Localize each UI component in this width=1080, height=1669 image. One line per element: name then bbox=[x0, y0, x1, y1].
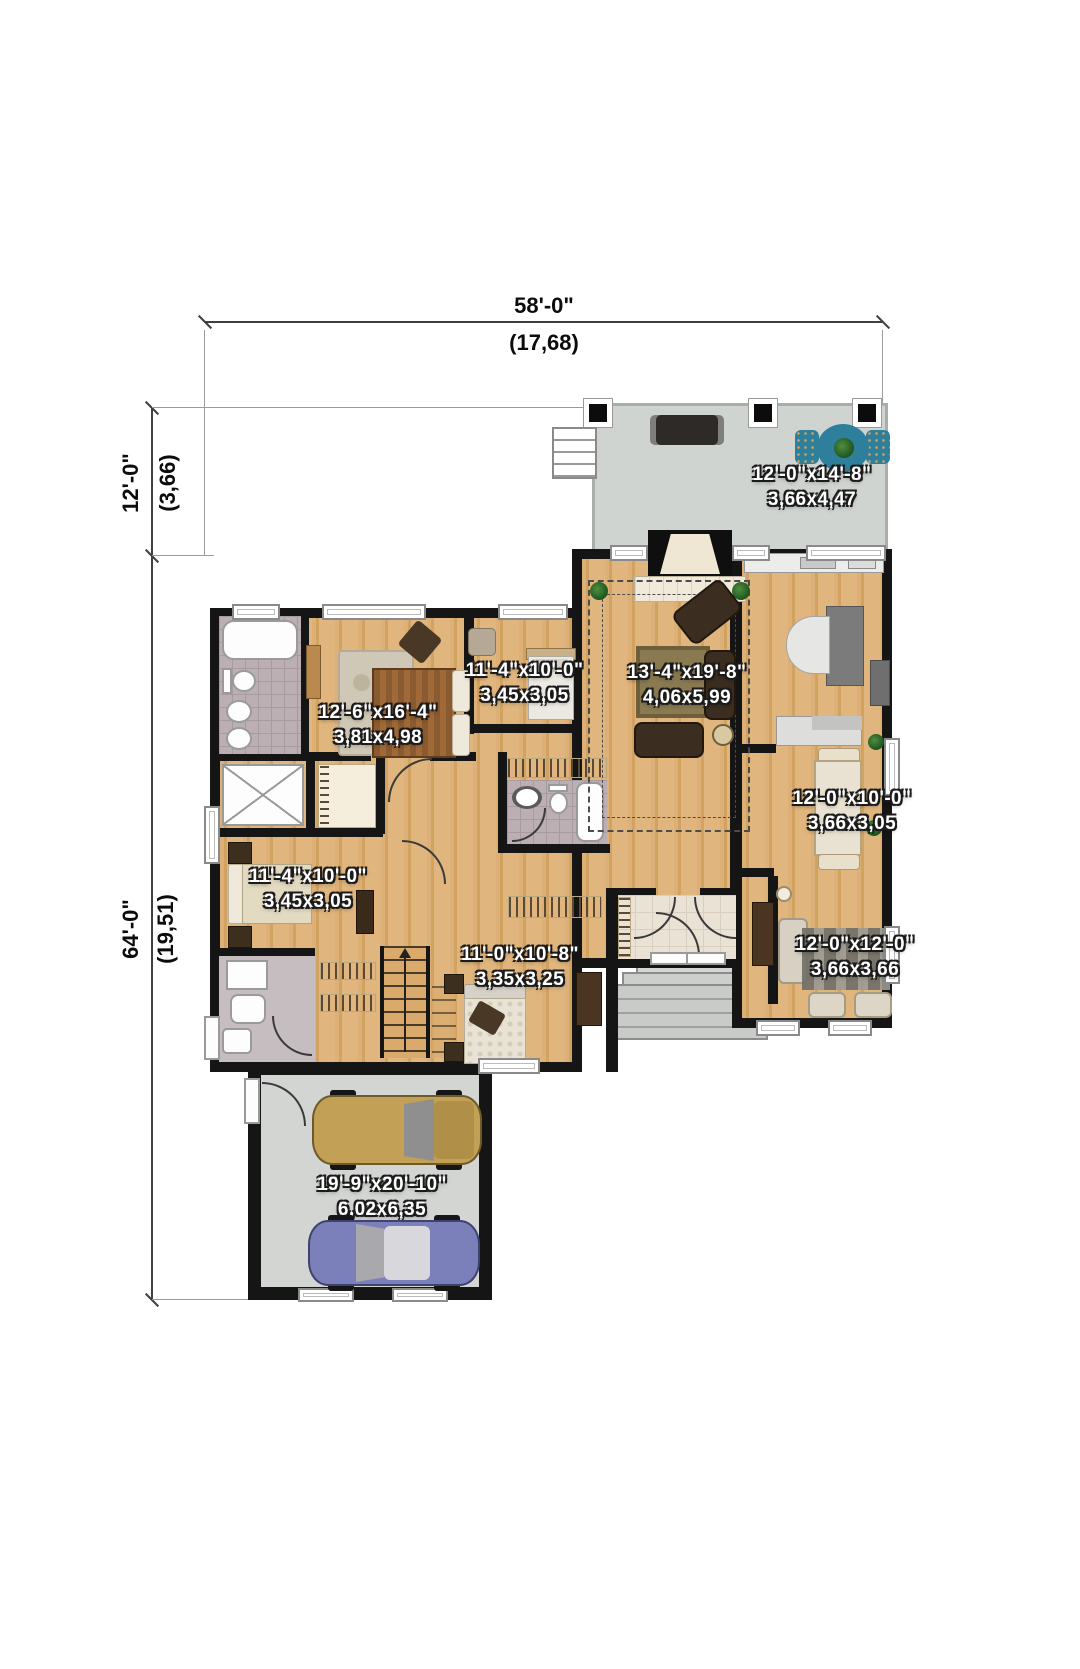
car-gold bbox=[312, 1093, 482, 1167]
bed4-size-m: 3,35x3,25 bbox=[420, 967, 620, 992]
terrace-bench bbox=[656, 415, 718, 445]
terrace-stairs bbox=[552, 427, 597, 479]
window-living-left bbox=[610, 545, 648, 561]
wall-shower-closet bbox=[306, 758, 315, 834]
bedroom3-label: 11'-4"x10'-0" 3,45x3,05 bbox=[208, 864, 408, 914]
wall-bath-left bbox=[498, 752, 507, 848]
living-size-ft: 13'-4"x19'-8" bbox=[587, 660, 787, 685]
wall-bed2-bottom bbox=[464, 724, 576, 733]
family-size-ft: 12'-0"x12'-0" bbox=[755, 932, 955, 957]
window-living-right bbox=[732, 545, 770, 561]
ext-line-terrace-top bbox=[152, 407, 592, 408]
garage-size-ft: 19'-9"x20'-10" bbox=[272, 1172, 492, 1197]
bed3-size-m: 3,45x3,05 bbox=[208, 889, 408, 914]
window-bed4 bbox=[478, 1058, 540, 1074]
living-size-m: 4,06x5,99 bbox=[587, 685, 787, 710]
top-dimension-line bbox=[205, 321, 883, 323]
bed3-nightstand-2 bbox=[228, 926, 252, 948]
bed4-closet bbox=[508, 896, 602, 918]
ext-line-house-top bbox=[152, 555, 214, 556]
window-bed2 bbox=[498, 604, 568, 620]
height-dimension-m: (19,51) bbox=[153, 879, 179, 979]
car-gold-cabin bbox=[434, 1101, 474, 1159]
kitchen-fridge bbox=[870, 660, 890, 706]
hall-closet-1 bbox=[320, 962, 376, 980]
bedroom4-label: 11'-0"x10'-8" 3,35x3,25 bbox=[420, 942, 620, 992]
dining-size-ft: 12'-0"x10'-0" bbox=[752, 786, 952, 811]
dining-chair-bottom bbox=[818, 854, 860, 870]
laundry-sink bbox=[230, 994, 266, 1024]
living-sofa-bottom bbox=[634, 722, 704, 758]
car-blue-roof bbox=[384, 1226, 430, 1280]
window-kitchen bbox=[806, 545, 886, 561]
stairs-direction-arrow bbox=[399, 948, 411, 958]
car-gold-windshield bbox=[404, 1099, 434, 1161]
family-room-label: 12'-0"x12'-0" 3,66x3,66 bbox=[755, 932, 955, 982]
terrace-size-m: 3,66x4,47 bbox=[712, 487, 912, 512]
kitchen-island bbox=[826, 606, 864, 686]
window-master bbox=[322, 604, 426, 620]
window-family-bottom-2 bbox=[828, 1020, 872, 1036]
wall-bed3-top bbox=[219, 828, 383, 837]
bed3-size-ft: 11'-4"x10'-0" bbox=[208, 864, 408, 889]
window-family-bottom-1 bbox=[756, 1020, 800, 1036]
front-double-door bbox=[650, 952, 726, 965]
ensuite-sink-1 bbox=[226, 700, 252, 723]
living-room-label: 13'-4"x19'-8" 4,06x5,99 bbox=[587, 660, 787, 710]
living-plant-left bbox=[590, 582, 608, 600]
terrace-table-plant bbox=[834, 438, 854, 458]
bed2-chair bbox=[468, 628, 496, 656]
floor-plan-canvas: 58'-0" (17,68) 12'-0" (3,66) 64'-0" (19,… bbox=[0, 0, 1080, 1669]
shower bbox=[222, 764, 304, 826]
terrace-size-ft: 12'-0"x14'-8" bbox=[712, 462, 912, 487]
terrace-chair-left bbox=[795, 430, 819, 464]
guide-line-right bbox=[882, 330, 883, 403]
family-armchair-1 bbox=[808, 992, 846, 1018]
wall-closet-right bbox=[376, 758, 385, 834]
laundry-basin bbox=[222, 1028, 252, 1054]
ensuite-sink-2 bbox=[226, 727, 252, 750]
living-side-table bbox=[712, 724, 734, 746]
ensuite-bathtub bbox=[222, 620, 298, 660]
main-bath-sink bbox=[516, 789, 538, 806]
car-blue-windshield bbox=[356, 1224, 384, 1282]
terrace-post-2 bbox=[749, 399, 777, 427]
terrace-post-3 bbox=[853, 399, 881, 427]
width-dimension-ft: 58'-0" bbox=[394, 293, 694, 319]
master-dresser bbox=[306, 645, 321, 699]
stairs-center-line bbox=[404, 952, 406, 1052]
ext-line-garage-bottom bbox=[152, 1299, 252, 1300]
ensuite-toilet bbox=[232, 670, 256, 692]
front-door-split bbox=[686, 952, 688, 965]
bed4-size-ft: 11'-0"x10'-8" bbox=[420, 942, 620, 967]
garage-label: 19'-9"x20'-10" 6,02x6,35 bbox=[272, 1172, 492, 1222]
wall-bath-bottom bbox=[498, 844, 610, 853]
family-armchair-2 bbox=[854, 992, 892, 1018]
height-dimension-ft: 64'-0" bbox=[118, 879, 144, 979]
guide-line-left bbox=[204, 330, 205, 556]
laundry-washer bbox=[226, 960, 268, 990]
dining-room-label: 12'-0"x10'-0" 3,66x3,05 bbox=[752, 786, 952, 836]
ensuite-toilet-tank bbox=[222, 668, 232, 694]
main-bath-toilet-tank bbox=[548, 784, 568, 792]
main-bath-toilet bbox=[549, 792, 568, 814]
walkin-closet-hangers bbox=[320, 766, 329, 826]
terrace-chair-right bbox=[866, 430, 890, 464]
left-dimension-line bbox=[151, 408, 153, 1300]
terrace-label: 12'-0"x14'-8" 3,66x4,47 bbox=[712, 462, 912, 512]
kitchen-peninsula-sink bbox=[812, 716, 862, 730]
bed3-nightstand-1 bbox=[228, 842, 252, 864]
dining-plant-1 bbox=[868, 734, 884, 750]
terrace-depth-ft: 12'-0" bbox=[118, 433, 144, 533]
terrace-post-1 bbox=[584, 399, 612, 427]
garage-side-door bbox=[244, 1078, 260, 1124]
car-blue bbox=[308, 1218, 480, 1288]
width-dimension-m: (17,68) bbox=[394, 330, 694, 356]
hall-closet-2 bbox=[320, 994, 376, 1012]
laundry-exterior-door bbox=[204, 1016, 220, 1060]
bed4-nightstand-2 bbox=[444, 1042, 464, 1062]
window-ensuite bbox=[232, 604, 280, 620]
dining-size-m: 3,66x3,05 bbox=[752, 811, 952, 836]
master-size-m: 3,81x4,98 bbox=[278, 725, 478, 750]
family-lamp bbox=[776, 886, 792, 902]
terrace-depth-m: (3,66) bbox=[155, 433, 181, 533]
family-size-m: 3,66x3,66 bbox=[755, 957, 955, 982]
window-bed3 bbox=[204, 806, 220, 864]
